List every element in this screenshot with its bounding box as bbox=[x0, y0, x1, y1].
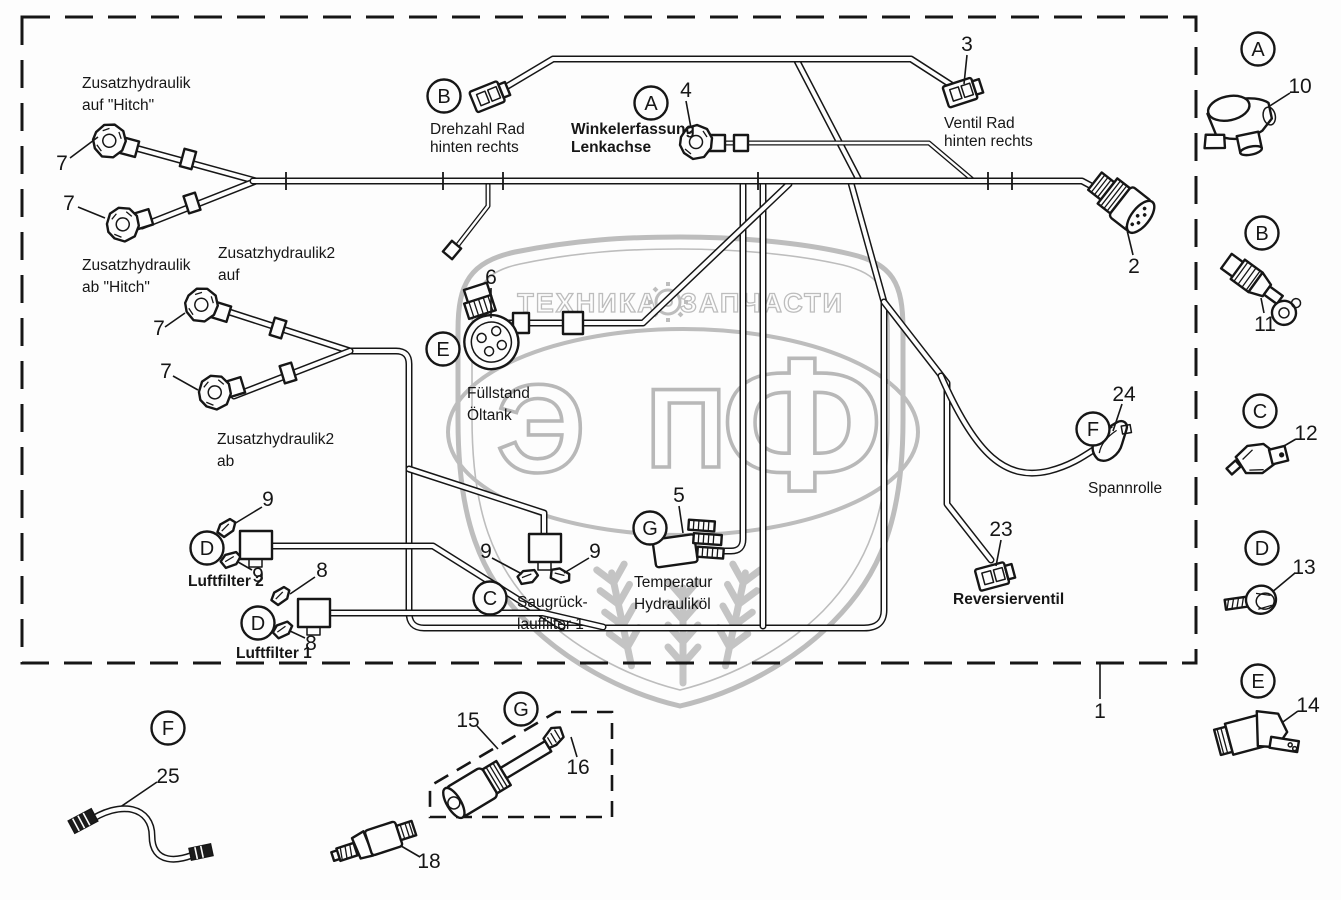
callout-9: 9 bbox=[480, 540, 492, 563]
label-fuellstand-2: Öltank bbox=[467, 406, 512, 424]
part-25-fitting-icon bbox=[68, 809, 98, 834]
label-ventil-1: Ventil Rad bbox=[944, 115, 1015, 132]
callout-7: 7 bbox=[153, 317, 165, 340]
part-12-icon bbox=[1222, 437, 1289, 481]
label-fuellstand-1: Füllstand bbox=[467, 385, 530, 402]
bottom-parts bbox=[68, 712, 612, 867]
label-saugrueck-1: Saugrück- bbox=[517, 594, 588, 611]
connector-7-hydraulic2-up-icon bbox=[181, 284, 234, 330]
label-zusatz2-auf-1: Zusatzhydraulik2 bbox=[218, 245, 335, 262]
ref-f: F bbox=[162, 718, 174, 740]
label-zusatz-auf-2: auf "Hitch" bbox=[82, 97, 154, 114]
callout-8: 8 bbox=[316, 559, 328, 582]
callout-25: 25 bbox=[156, 765, 179, 788]
connector-b-speed-sensor-icon bbox=[469, 78, 512, 112]
ref-b-sidebar: B bbox=[1255, 223, 1268, 245]
part-25-fitting-icon bbox=[189, 844, 213, 860]
label-spannrolle: Spannrolle bbox=[1088, 480, 1162, 497]
watermark-letter-e: Э bbox=[497, 360, 586, 499]
callout-16: 16 bbox=[566, 756, 589, 779]
wheat-icon bbox=[711, 564, 761, 669]
callout-7: 7 bbox=[160, 360, 172, 383]
label-zusatz-ab-1: Zusatzhydraulik bbox=[82, 257, 191, 274]
callout-4: 4 bbox=[680, 79, 692, 102]
block-luftfilter2-icon bbox=[240, 531, 272, 567]
callout-3: 3 bbox=[961, 33, 973, 56]
watermark-shield: ТЕХНИКА ЗАПЧАСТИ Э П Ф bbox=[448, 237, 918, 706]
spade-9-icon bbox=[517, 568, 540, 586]
label-zusatz-ab-2: ab "Hitch" bbox=[82, 279, 150, 296]
label-temperatur-1: Temperatur bbox=[634, 574, 712, 591]
callout-7: 7 bbox=[63, 192, 75, 215]
diagram-canvas: ТЕХНИКА ЗАПЧАСТИ Э П Ф 1 bbox=[0, 0, 1341, 900]
part-15-16-cable-icon bbox=[439, 721, 574, 821]
callout-1: 1 bbox=[1094, 700, 1106, 723]
label-zusatz2-ab-2: ab bbox=[217, 453, 234, 470]
ref-a: A bbox=[644, 93, 658, 115]
callout-2: 2 bbox=[1128, 255, 1140, 278]
label-luftfilter1: Luftfilter 1 bbox=[236, 645, 312, 662]
wiring-harness-diagram: ТЕХНИКА ЗАПЧАСТИ Э П Ф 1 bbox=[0, 0, 1341, 900]
ref-d: D bbox=[251, 613, 265, 635]
part-13-icon bbox=[1223, 584, 1277, 619]
callout-15: 15 bbox=[456, 709, 479, 732]
part-14-icon bbox=[1212, 703, 1301, 772]
label-zusatz-auf-1: Zusatzhydraulik bbox=[82, 75, 191, 92]
label-winkel-2: Lenkachse bbox=[571, 139, 652, 156]
label-luftfilter2: Luftfilter 2 bbox=[188, 573, 264, 590]
label-drehzahl-2: hinten rechts bbox=[430, 139, 519, 156]
block-luftfilter1-icon bbox=[298, 599, 330, 635]
ref-f: F bbox=[1087, 419, 1099, 441]
label-ventil-2: hinten rechts bbox=[944, 133, 1033, 150]
callout-12: 12 bbox=[1294, 422, 1317, 445]
ref-d: D bbox=[200, 538, 214, 560]
spade-9-icon bbox=[549, 566, 572, 585]
callout-24: 24 bbox=[1112, 383, 1136, 406]
part-18-icon bbox=[328, 816, 418, 867]
ref-c: C bbox=[483, 588, 497, 610]
ref-d-sidebar: D bbox=[1255, 538, 1269, 560]
callout-6: 6 bbox=[485, 266, 497, 289]
part-10-icon bbox=[1195, 87, 1282, 163]
label-saugrueck-2: lauffilter 1 bbox=[517, 616, 584, 633]
label-zusatz2-ab-1: Zusatzhydraulik2 bbox=[217, 431, 334, 448]
sidebar-parts: A B C D bbox=[1195, 33, 1305, 772]
label-drehzahl-1: Drehzahl Rad bbox=[430, 121, 525, 138]
connector-7-hydraulic2-down-icon bbox=[194, 368, 247, 414]
spade-8-icon bbox=[269, 584, 293, 607]
callout-18: 18 bbox=[417, 850, 440, 873]
label-zusatz2-auf-2: auf bbox=[218, 267, 240, 284]
label-reversierventil: Reversierventil bbox=[953, 591, 1064, 608]
ref-a-sidebar: A bbox=[1251, 39, 1265, 61]
ref-e: E bbox=[436, 339, 449, 361]
watermark-letter-p: П bbox=[646, 366, 727, 491]
ref-e-sidebar: E bbox=[1251, 671, 1264, 693]
connector-2-main-plug-icon bbox=[1083, 166, 1159, 237]
callout-9: 9 bbox=[262, 488, 274, 511]
callout-5: 5 bbox=[673, 484, 685, 507]
ref-b: B bbox=[437, 86, 450, 108]
connector-7-hydraulic-up-icon bbox=[89, 120, 141, 164]
ref-g: G bbox=[513, 699, 529, 721]
watermark-word-tehnika: ТЕХНИКА bbox=[517, 288, 658, 318]
label-winkel-1: Winkelerfassung bbox=[571, 121, 695, 138]
label-temperatur-2: Hydrauliköl bbox=[634, 596, 711, 613]
callout-10: 10 bbox=[1288, 75, 1311, 98]
callout-13: 13 bbox=[1292, 556, 1315, 579]
ref-c-sidebar: C bbox=[1253, 401, 1267, 423]
callout-7: 7 bbox=[56, 152, 68, 175]
callout-23: 23 bbox=[989, 518, 1012, 541]
ref-g: G bbox=[642, 518, 658, 540]
callout-14: 14 bbox=[1296, 694, 1320, 717]
callout-9: 9 bbox=[589, 540, 601, 563]
block-saugrueck-icon bbox=[529, 534, 561, 570]
connector-7-hydraulic-down-icon bbox=[102, 200, 155, 246]
